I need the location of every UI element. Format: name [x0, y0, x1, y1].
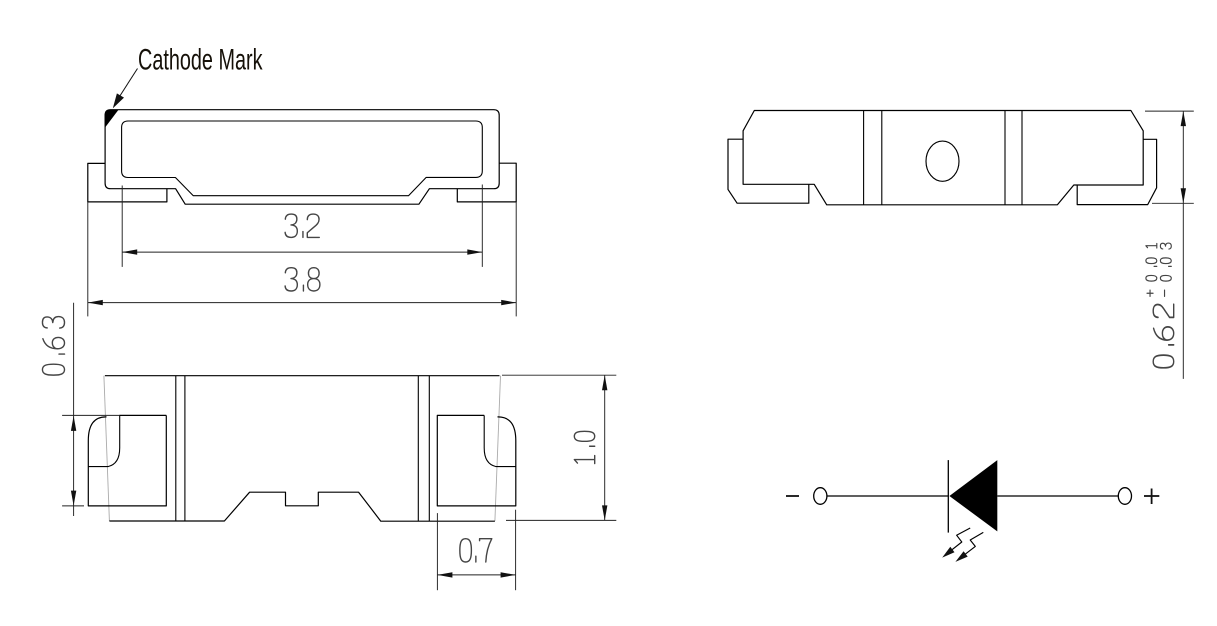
svg-text:Cathode Mark: Cathode Mark — [138, 44, 263, 77]
